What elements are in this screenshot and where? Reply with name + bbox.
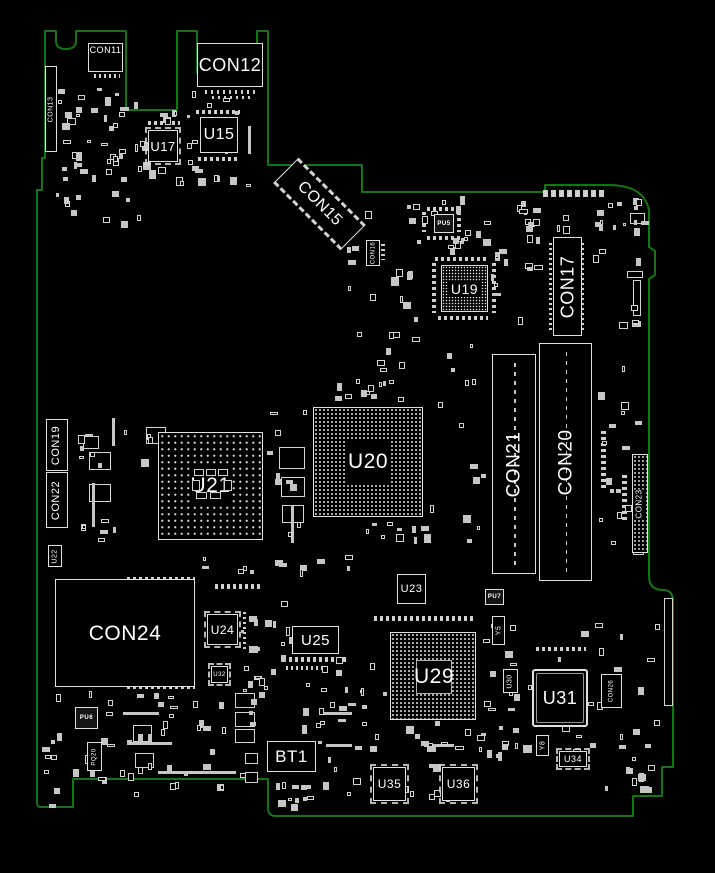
component-u24: U24: [207, 614, 238, 645]
passive-part: [606, 478, 612, 485]
passive-part: [508, 708, 515, 711]
passive-part: [461, 238, 464, 244]
passive-part: [504, 259, 508, 266]
component-label: Y8: [539, 741, 546, 751]
passive-part: [127, 740, 132, 745]
passive-part: [593, 255, 599, 263]
passive-part: [80, 446, 84, 451]
passive-part: [158, 702, 164, 707]
passive-part: [336, 657, 343, 664]
passive-part: [89, 691, 92, 698]
passive-part: [245, 772, 258, 783]
pad-row: [549, 243, 552, 331]
passive-part: [620, 734, 623, 740]
passive-part: [112, 418, 115, 446]
component-label: CON22: [52, 480, 63, 519]
passive-part: [533, 208, 541, 213]
passive-part: [98, 777, 106, 781]
passive-part: [451, 368, 455, 372]
passive-part: [447, 353, 452, 359]
passive-part: [101, 738, 108, 745]
passive-part: [514, 694, 520, 701]
component-u34: U34: [559, 751, 587, 767]
passive-part: [203, 764, 211, 770]
passive-part: [400, 296, 403, 303]
passive-part: [365, 211, 372, 219]
component-label: Y5: [495, 626, 502, 636]
passive-part: [622, 366, 625, 372]
passive-part: [121, 177, 127, 182]
passive-part: [370, 663, 375, 670]
passive-part: [334, 767, 337, 772]
passive-part: [518, 317, 523, 325]
passive-part: [438, 402, 443, 408]
passive-part: [608, 203, 613, 208]
component-con16: CON16: [366, 240, 380, 266]
passive-part: [316, 723, 321, 728]
component-con24: CON24: [55, 579, 195, 687]
passive-part: [636, 199, 642, 206]
passive-part: [281, 601, 288, 607]
passive-part: [78, 95, 85, 100]
passive-part: [655, 624, 660, 630]
passive-part: [85, 434, 93, 437]
passive-part: [621, 402, 629, 410]
passive-part: [477, 526, 480, 530]
passive-part: [599, 518, 603, 522]
passive-part: [455, 746, 464, 750]
passive-part: [184, 771, 188, 776]
passive-part: [408, 271, 413, 279]
passive-part: [321, 688, 327, 692]
passive-part: [76, 114, 80, 117]
component-label: CON21: [505, 431, 524, 497]
component-label: U29: [414, 666, 454, 687]
passive-part: [63, 177, 68, 181]
passive-part: [634, 206, 638, 210]
component-label: U36: [447, 778, 471, 790]
passive-part: [303, 708, 309, 716]
passive-part: [356, 379, 360, 384]
passive-part: [413, 204, 420, 210]
passive-part: [222, 727, 226, 734]
component-label: CON23: [634, 489, 646, 518]
component-label: U20: [348, 451, 388, 472]
passive-part: [51, 755, 57, 760]
passive-part: [291, 804, 298, 811]
passive-part: [251, 699, 257, 705]
passive-part: [167, 765, 172, 773]
passive-part: [627, 271, 643, 278]
passive-part: [361, 688, 364, 696]
passive-part: [620, 634, 623, 640]
passive-part: [563, 215, 569, 221]
passive-part: [396, 534, 404, 542]
passive-part: [481, 474, 486, 478]
passive-part: [57, 733, 62, 741]
passive-part: [248, 126, 251, 154]
component-u15: U15: [200, 117, 238, 153]
passive-part: [523, 745, 532, 753]
pad-row: [198, 157, 238, 161]
passive-part: [597, 210, 604, 216]
passive-part: [79, 456, 84, 459]
passive-part: [339, 706, 347, 711]
passive-part: [558, 657, 561, 662]
pad-row: [492, 263, 496, 313]
passive-part: [347, 792, 351, 796]
passive-part: [137, 215, 141, 221]
passive-part: [124, 430, 127, 435]
component-u29: U29: [390, 632, 476, 720]
pad-row: [196, 110, 240, 114]
passive-part: [641, 221, 649, 225]
passive-part: [223, 98, 230, 102]
passive-part: [355, 746, 362, 750]
passive-part: [434, 790, 441, 797]
passive-part: [161, 729, 165, 736]
passive-part: [163, 721, 168, 729]
passive-part: [487, 750, 492, 758]
component-con22: CON22: [46, 472, 68, 528]
passive-part: [113, 123, 118, 128]
component-label: CON17: [559, 255, 577, 318]
component-u36: U36: [442, 767, 475, 801]
passive-part: [424, 534, 431, 543]
passive-part: [165, 118, 171, 125]
passive-part: [502, 744, 508, 750]
component-label: U24: [211, 624, 235, 636]
component-label: U34: [564, 755, 582, 764]
passive-part: [135, 144, 138, 152]
component-label: U32: [213, 672, 226, 678]
passive-part: [240, 773, 246, 778]
passive-part: [197, 725, 201, 731]
passive-part: [505, 651, 513, 658]
component-con13: CON13: [45, 66, 57, 152]
passive-part: [499, 249, 507, 254]
passive-part: [288, 798, 292, 801]
passive-part: [563, 226, 570, 234]
passive-part: [210, 749, 215, 755]
passive-part: [51, 740, 55, 744]
component-u21: U21: [158, 432, 263, 540]
pad-row: [457, 212, 461, 232]
passive-part: [433, 764, 441, 772]
passive-part: [453, 238, 459, 244]
component-con20: CON20: [539, 343, 592, 581]
passive-part: [473, 477, 480, 484]
passive-part: [515, 743, 518, 749]
passive-part: [113, 527, 116, 533]
passive-part: [622, 446, 630, 450]
passive-part: [192, 140, 198, 144]
passive-part: [490, 671, 496, 677]
pad-row: [215, 584, 261, 589]
passive-part: [54, 788, 60, 794]
passive-part: [203, 557, 206, 561]
component-label: U15: [204, 127, 235, 143]
passive-part: [362, 705, 367, 709]
passive-part: [464, 237, 468, 241]
passive-part: [588, 702, 594, 706]
component-bt1: BT1: [267, 741, 316, 772]
passive-part: [76, 195, 81, 200]
passive-part: [238, 569, 244, 574]
passive-part: [76, 152, 82, 161]
component-label: U23: [401, 584, 423, 595]
passive-part: [647, 658, 655, 662]
component-u17: U17: [148, 130, 178, 162]
passive-part: [347, 566, 350, 571]
passive-part: [73, 769, 79, 777]
passive-part: [598, 392, 605, 400]
component-u31: U31: [532, 669, 588, 727]
passive-part: [265, 620, 272, 627]
passive-part: [158, 771, 206, 774]
passive-part: [557, 225, 560, 232]
passive-part: [617, 202, 622, 206]
passive-part: [648, 765, 655, 771]
passive-part: [78, 435, 85, 444]
passive-part: [270, 412, 278, 415]
component-label: CON20: [556, 429, 575, 495]
passive-part: [119, 112, 125, 117]
passive-part: [337, 383, 342, 391]
passive-part: [414, 537, 417, 544]
passive-part: [49, 804, 56, 808]
passive-part: [429, 794, 435, 800]
passive-part: [328, 757, 331, 763]
component-label: U17: [150, 140, 175, 153]
passive-part: [137, 694, 144, 698]
passive-part: [465, 729, 471, 736]
component-label: CON16: [370, 242, 376, 265]
passive-part: [148, 763, 152, 770]
passive-part: [249, 711, 253, 715]
passive-part: [259, 692, 265, 698]
passive-part: [148, 437, 153, 444]
passive-part: [120, 107, 129, 111]
passive-part: [120, 770, 125, 777]
passive-part: [406, 726, 414, 734]
passive-part: [273, 621, 276, 628]
passive-part: [126, 198, 130, 202]
passive-part: [435, 721, 440, 726]
bga-center-patch: U20: [346, 441, 389, 482]
component-label: CON11: [90, 46, 122, 55]
component-label: U22: [52, 549, 59, 563]
passive-part: [77, 163, 82, 167]
pad-row: [622, 475, 627, 521]
component-y8: Y8: [536, 735, 549, 756]
passive-part: [513, 728, 519, 733]
passive-part: [160, 113, 168, 117]
passive-part: [602, 441, 607, 445]
passive-part: [634, 220, 637, 225]
passive-part: [198, 178, 206, 186]
passive-part: [613, 225, 616, 230]
passive-part: [326, 744, 352, 747]
passive-part: [463, 515, 471, 523]
passive-part: [595, 222, 600, 227]
passive-part: [381, 535, 385, 539]
passive-part: [415, 734, 420, 739]
passive-part: [595, 623, 603, 628]
passive-part: [399, 362, 405, 369]
passive-part: [492, 293, 501, 296]
passive-part: [303, 410, 307, 415]
passive-part: [128, 742, 172, 745]
passive-part: [106, 169, 112, 175]
passive-part: [243, 689, 247, 692]
passive-part: [106, 712, 113, 716]
passive-part: [353, 778, 361, 785]
pcb-board-diagram: CON13CON11CON12U15U17CON15CON16PU5U19CON…: [0, 0, 715, 873]
component-con17: CON17: [553, 237, 582, 336]
passive-part: [123, 712, 159, 715]
passive-part: [103, 217, 110, 223]
passive-part: [412, 337, 420, 342]
component-con23: CON23: [632, 454, 648, 553]
passive-part: [409, 218, 416, 224]
component-u35: U35: [373, 767, 406, 801]
passive-part: [581, 631, 589, 637]
passive-part: [230, 177, 237, 185]
passive-part: [275, 560, 283, 566]
passive-part: [113, 156, 118, 162]
passive-part: [638, 687, 644, 695]
inner-passive: [194, 469, 204, 476]
passive-part: [100, 530, 108, 534]
passive-part: [271, 669, 276, 675]
passive-part: [56, 193, 59, 197]
passive-part: [370, 294, 376, 301]
passive-part: [619, 745, 626, 749]
passive-part: [193, 701, 198, 708]
passive-part: [375, 734, 379, 740]
passive-part: [465, 380, 469, 386]
passive-part: [467, 539, 472, 543]
passive-part: [292, 785, 299, 789]
inner-passive: [196, 492, 207, 499]
passive-part: [389, 380, 394, 384]
passive-part: [154, 693, 159, 699]
passive-part: [63, 140, 71, 144]
passive-part: [107, 744, 115, 747]
component-pq20: PQ20: [87, 742, 102, 771]
passive-part: [519, 209, 528, 214]
passive-part: [441, 742, 448, 745]
passive-part: [448, 245, 454, 249]
passive-part: [403, 302, 411, 309]
passive-part: [611, 541, 616, 545]
passive-part: [430, 505, 434, 513]
passive-part: [429, 764, 434, 768]
passive-part: [92, 483, 95, 527]
passive-part: [472, 379, 476, 385]
pad-row: [432, 263, 436, 313]
component-u20: U20: [313, 407, 423, 517]
passive-part: [138, 767, 143, 774]
passive-part: [484, 221, 491, 225]
passive-part: [248, 681, 253, 688]
component-label: CON13: [48, 96, 55, 122]
pad-row: [435, 257, 487, 261]
passive-part: [104, 115, 107, 122]
passive-part: [98, 463, 102, 468]
component-label: PQ20: [92, 748, 98, 765]
passive-part: [483, 639, 490, 643]
component-u32: U32: [211, 666, 228, 683]
passive-part: [633, 729, 640, 735]
passive-part: [345, 687, 348, 693]
passive-part: [335, 396, 342, 401]
passive-part: [259, 678, 265, 686]
passive-part: [526, 226, 533, 232]
passive-part: [610, 489, 614, 493]
passive-part: [391, 277, 399, 286]
passive-part: [105, 97, 111, 106]
passive-part: [484, 701, 491, 707]
passive-part: [396, 269, 403, 277]
inner-passive: [218, 469, 228, 476]
passive-part: [64, 197, 69, 204]
passive-part: [149, 170, 156, 179]
passive-part: [614, 667, 622, 672]
passive-part: [174, 111, 177, 116]
passive-part: [170, 783, 176, 790]
passive-part: [297, 522, 301, 528]
passive-part: [65, 112, 72, 118]
passive-part: [168, 696, 174, 699]
passive-part: [533, 219, 540, 226]
component-label: CON26: [609, 680, 615, 703]
passive-part: [148, 734, 152, 742]
passive-part: [481, 733, 486, 736]
passive-part: [470, 464, 478, 469]
passive-part: [330, 702, 335, 708]
component-label: U30: [507, 674, 514, 688]
passive-part: [357, 332, 362, 337]
component-label: PU6: [80, 715, 93, 721]
component-label: U31: [543, 689, 578, 707]
passive-part: [58, 100, 62, 104]
passive-part: [456, 206, 461, 214]
passive-part: [499, 726, 503, 730]
passive-part: [616, 489, 621, 493]
passive-part: [634, 228, 640, 236]
passive-part: [295, 798, 299, 803]
component-con12: CON12: [197, 43, 263, 87]
passive-part: [646, 787, 652, 793]
component-label: BT1: [275, 748, 308, 765]
passive-part: [180, 181, 184, 186]
passive-part: [281, 642, 285, 646]
passive-part: [421, 526, 429, 531]
pad-row: [543, 190, 607, 197]
component-label: U19: [448, 281, 481, 297]
passive-part: [414, 317, 418, 322]
passive-part: [134, 102, 138, 109]
passive-part: [619, 322, 628, 329]
pad-row: [205, 90, 257, 94]
passive-part: [282, 782, 286, 789]
passive-part: [632, 320, 639, 324]
component-label: U25: [301, 633, 330, 648]
passive-part: [286, 627, 290, 636]
passive-part: [192, 166, 199, 171]
